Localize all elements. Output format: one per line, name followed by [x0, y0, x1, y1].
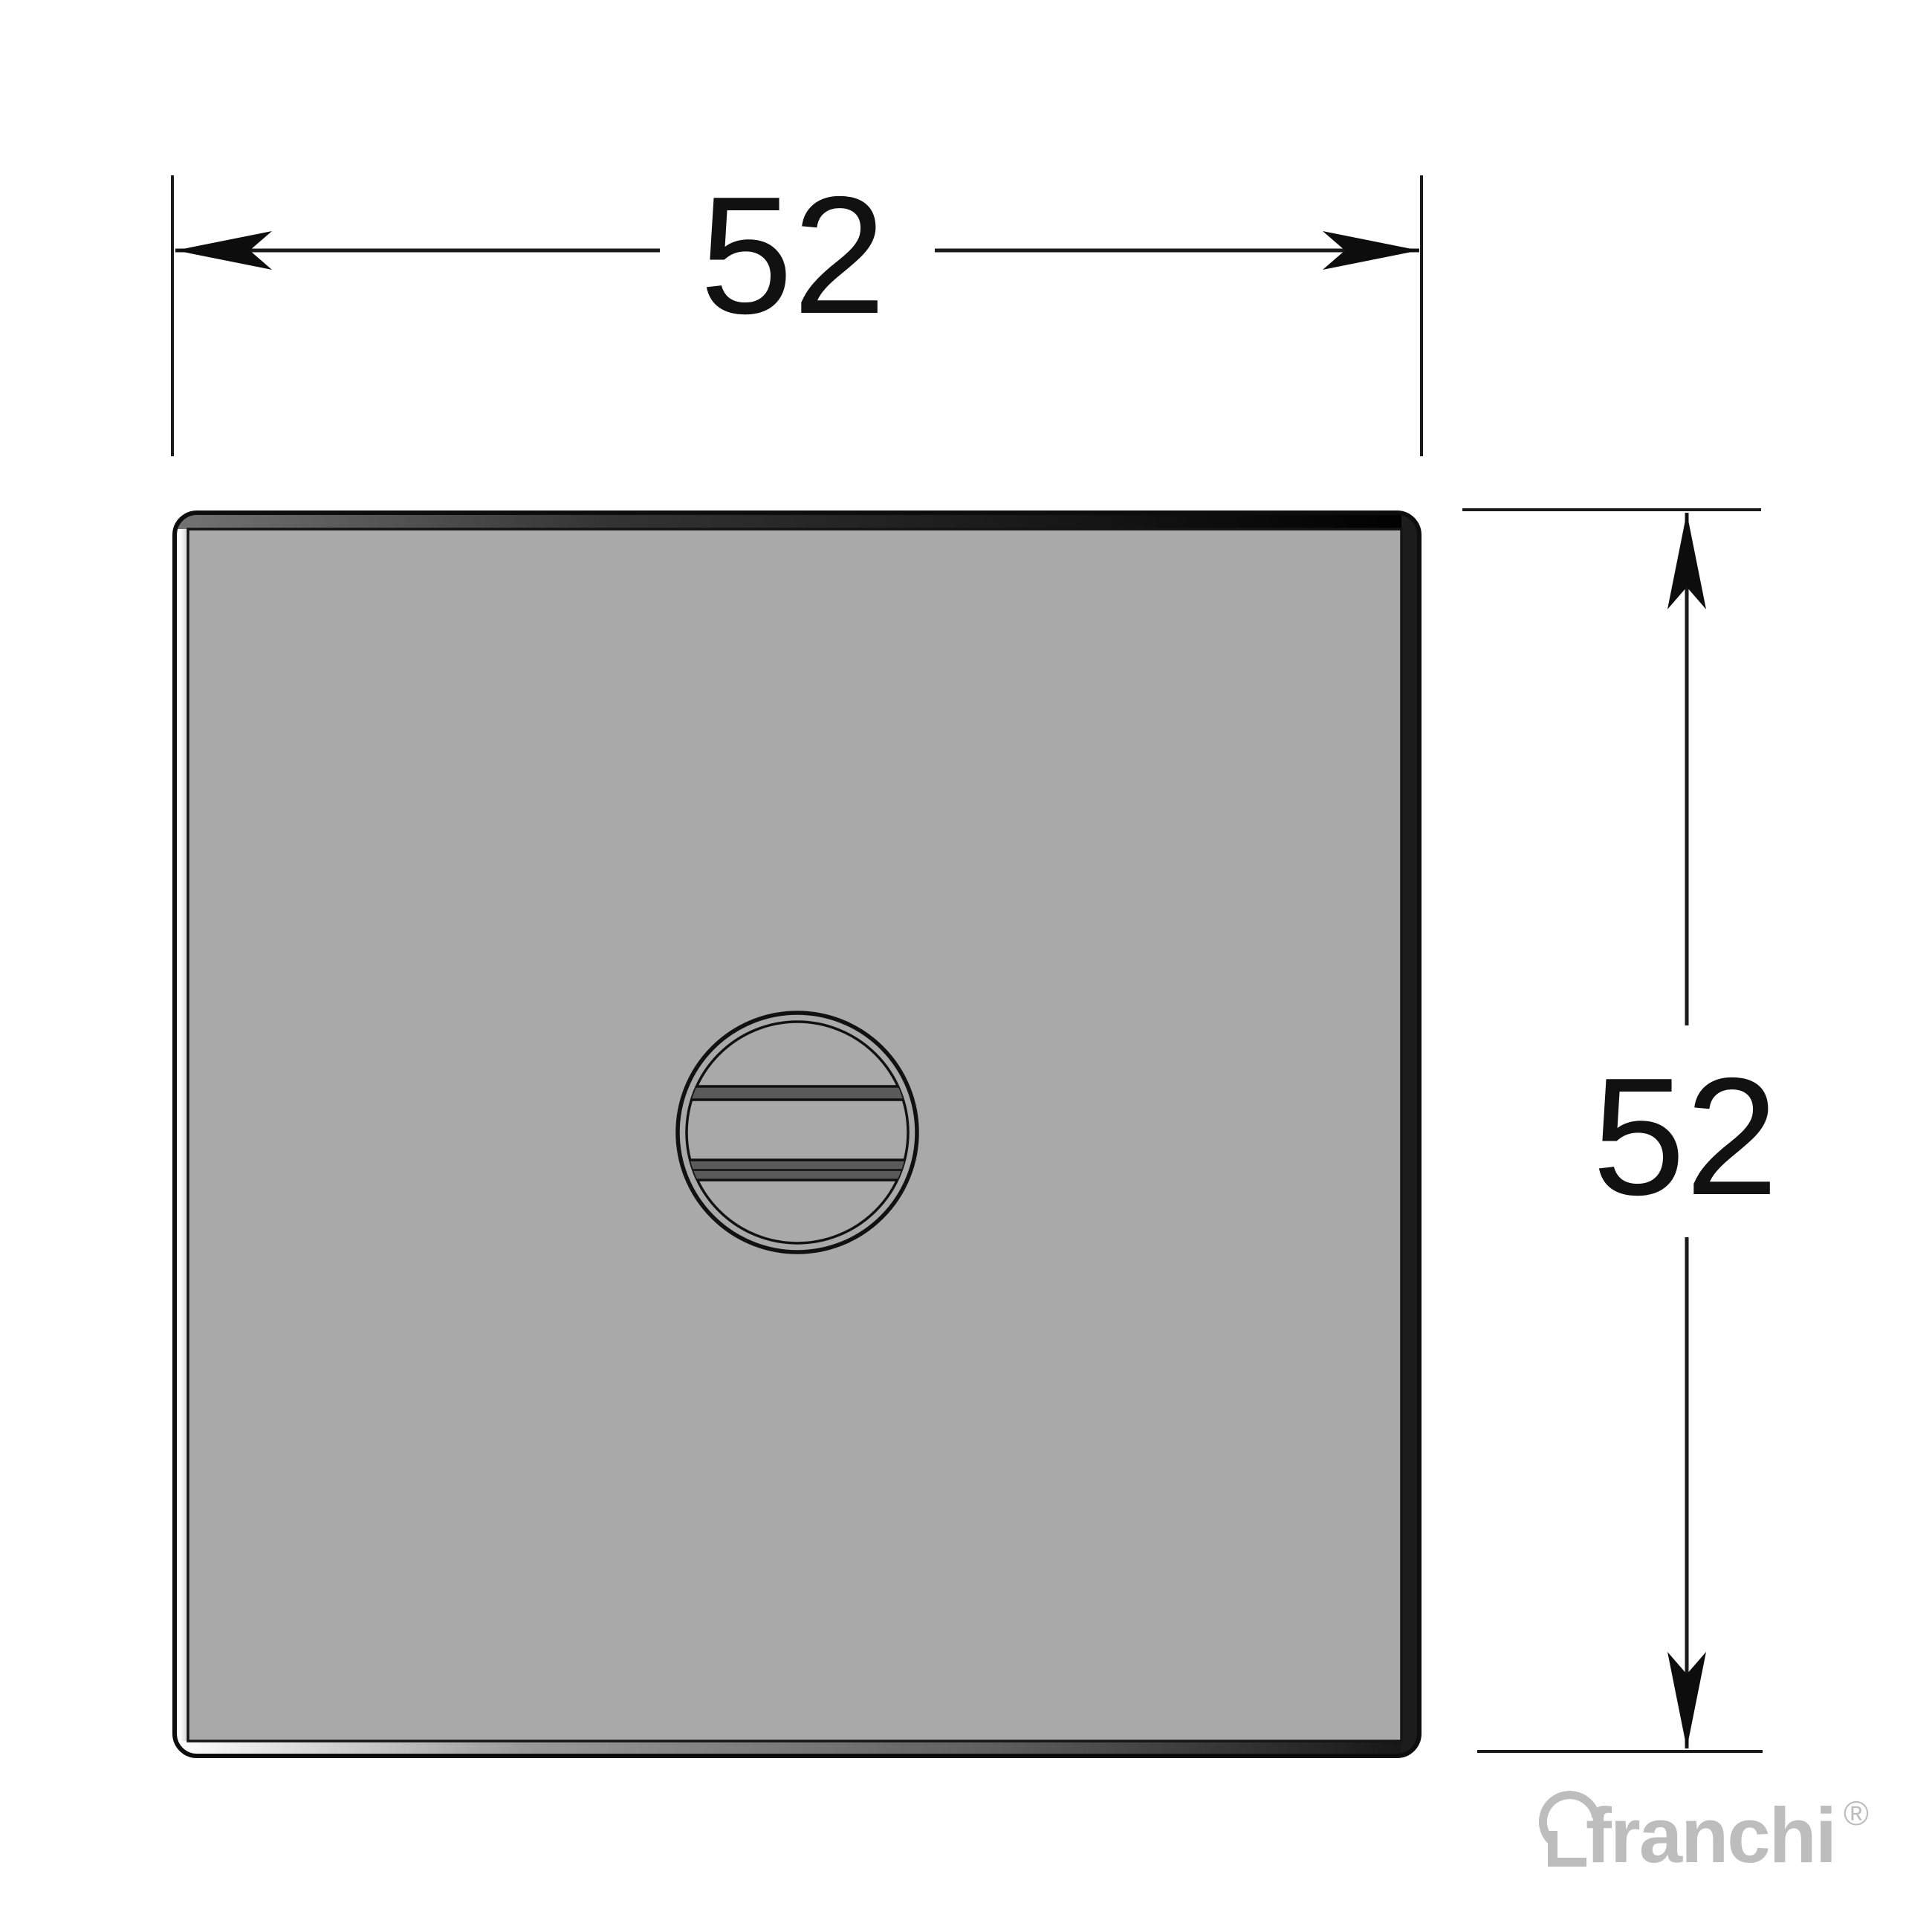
technical-drawing-page: 52 52 franchi ® — [0, 0, 1932, 1932]
height-dimension-value: 52 — [1592, 1043, 1778, 1230]
plate-right-bevel — [1401, 513, 1419, 1756]
brand-logo: franchi ® — [1543, 1792, 1869, 1879]
registered-mark: ® — [1844, 1794, 1869, 1832]
plate — [175, 513, 1419, 1756]
screw-slot-upper-bar — [678, 1086, 917, 1100]
brand-name: franchi — [1586, 1792, 1835, 1879]
plate-face — [175, 513, 1419, 1756]
plate-top-bevel — [175, 513, 1419, 529]
technical-drawing-canvas: 52 52 franchi ® — [0, 0, 1932, 1932]
width-dimension-value: 52 — [700, 161, 886, 349]
